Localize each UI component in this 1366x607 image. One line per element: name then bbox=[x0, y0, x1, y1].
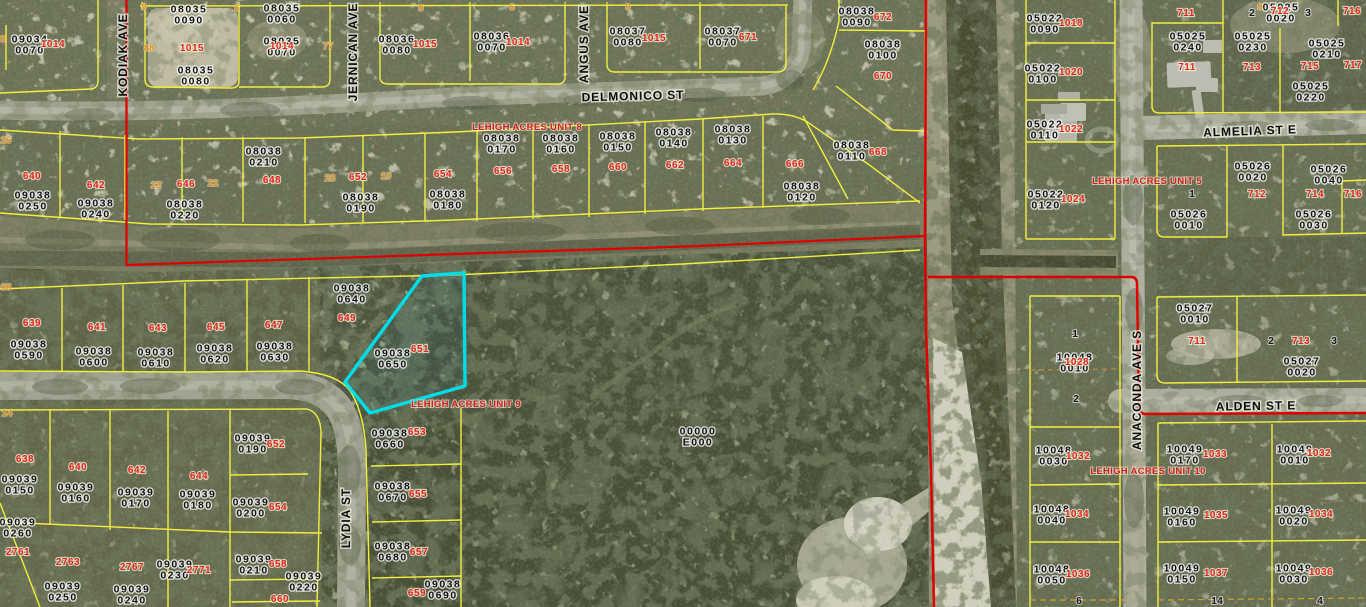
svg-text:2: 2 bbox=[1249, 7, 1255, 19]
svg-text:0040: 0040 bbox=[1037, 515, 1066, 527]
svg-text:0220: 0220 bbox=[289, 582, 318, 594]
svg-text:716: 716 bbox=[1344, 189, 1362, 200]
svg-text:1014: 1014 bbox=[41, 39, 65, 50]
svg-text:1018: 1018 bbox=[1059, 18, 1083, 29]
svg-text:0070: 0070 bbox=[477, 42, 506, 54]
svg-text:2761: 2761 bbox=[6, 547, 30, 558]
svg-text:643: 643 bbox=[149, 323, 167, 334]
svg-text:0050: 0050 bbox=[1037, 575, 1066, 587]
svg-text:1035: 1035 bbox=[1204, 510, 1228, 521]
svg-text:0090: 0090 bbox=[842, 17, 871, 29]
svg-text:655: 655 bbox=[409, 489, 427, 500]
svg-text:0030: 0030 bbox=[1039, 456, 1068, 468]
svg-text:662: 662 bbox=[666, 160, 684, 171]
svg-text:641: 641 bbox=[88, 322, 106, 333]
svg-text:0170: 0170 bbox=[1170, 455, 1199, 467]
svg-text:651: 651 bbox=[411, 344, 429, 355]
svg-text:1034: 1034 bbox=[1309, 509, 1333, 520]
svg-text:0160: 0160 bbox=[1167, 517, 1196, 529]
svg-text:ANGUS AVE: ANGUS AVE bbox=[577, 5, 591, 83]
svg-text:659: 659 bbox=[408, 588, 426, 599]
svg-text:0100: 0100 bbox=[868, 50, 897, 62]
svg-text:0010: 0010 bbox=[1174, 220, 1203, 232]
svg-text:717: 717 bbox=[1344, 60, 1362, 71]
svg-text:0590: 0590 bbox=[14, 350, 43, 362]
svg-text:640: 640 bbox=[23, 171, 41, 182]
svg-text:LEHIGH ACRES UNIT 10: LEHIGH ACRES UNIT 10 bbox=[1090, 466, 1205, 477]
svg-text:0220: 0220 bbox=[1296, 92, 1325, 104]
svg-text:0110: 0110 bbox=[1031, 130, 1060, 142]
svg-text:0170: 0170 bbox=[121, 498, 150, 510]
svg-text:0600: 0600 bbox=[79, 357, 108, 369]
svg-text:646: 646 bbox=[177, 179, 195, 190]
svg-text:1034: 1034 bbox=[1065, 509, 1089, 520]
svg-text:0090: 0090 bbox=[1030, 24, 1059, 36]
svg-text:0240: 0240 bbox=[1173, 42, 1202, 54]
svg-text:0150: 0150 bbox=[5, 485, 34, 497]
svg-text:0250: 0250 bbox=[18, 201, 47, 213]
svg-text:0150: 0150 bbox=[603, 142, 632, 154]
svg-text:0660: 0660 bbox=[375, 439, 404, 451]
svg-text:28: 28 bbox=[325, 173, 336, 184]
svg-text:1028: 1028 bbox=[1065, 357, 1089, 368]
svg-text:LEHIGH ACRES UNIT 8: LEHIGH ACRES UNIT 8 bbox=[472, 122, 582, 133]
svg-text:0190: 0190 bbox=[238, 444, 267, 456]
svg-text:9: 9 bbox=[141, 2, 146, 13]
svg-text:0040: 0040 bbox=[1314, 175, 1343, 187]
svg-text:KODIAK AVE: KODIAK AVE bbox=[116, 13, 130, 96]
svg-text:642: 642 bbox=[128, 465, 146, 476]
svg-text:0080: 0080 bbox=[382, 45, 411, 57]
svg-text:0690: 0690 bbox=[428, 590, 457, 602]
svg-text:LYDIA ST: LYDIA ST bbox=[339, 488, 353, 548]
svg-text:666: 666 bbox=[786, 159, 804, 170]
svg-text:654: 654 bbox=[434, 169, 452, 180]
svg-text:672: 672 bbox=[874, 12, 892, 23]
svg-text:714: 714 bbox=[1306, 189, 1324, 200]
svg-text:2: 2 bbox=[1268, 335, 1274, 347]
svg-text:22: 22 bbox=[208, 178, 219, 189]
svg-text:0180: 0180 bbox=[183, 500, 212, 512]
svg-text:4: 4 bbox=[1317, 595, 1323, 607]
svg-text:6: 6 bbox=[234, 3, 239, 14]
svg-text:77: 77 bbox=[323, 41, 334, 52]
svg-text:ALDEN ST E: ALDEN ST E bbox=[1216, 398, 1297, 413]
svg-text:LEHIGH ACRES UNIT 9: LEHIGH ACRES UNIT 9 bbox=[411, 399, 521, 410]
svg-text:0230: 0230 bbox=[1238, 42, 1267, 54]
svg-text:0130: 0130 bbox=[718, 135, 747, 147]
svg-text:668: 668 bbox=[869, 147, 887, 158]
svg-text:1: 1 bbox=[1189, 188, 1195, 200]
svg-text:712: 712 bbox=[1271, 6, 1289, 17]
svg-text:0210: 0210 bbox=[1312, 49, 1341, 61]
svg-text:0210: 0210 bbox=[249, 157, 278, 169]
svg-text:1: 1 bbox=[1072, 328, 1078, 340]
svg-text:88: 88 bbox=[144, 43, 155, 54]
svg-text:0230: 0230 bbox=[160, 570, 189, 582]
svg-text:671: 671 bbox=[739, 32, 757, 43]
svg-text:1033: 1033 bbox=[1203, 449, 1227, 460]
svg-text:19: 19 bbox=[381, 171, 392, 182]
svg-text:649: 649 bbox=[338, 313, 356, 324]
svg-text:0250: 0250 bbox=[48, 592, 77, 604]
svg-text:653: 653 bbox=[408, 427, 426, 438]
svg-text:0020: 0020 bbox=[1287, 367, 1316, 379]
svg-text:1022: 1022 bbox=[1059, 124, 1083, 135]
svg-text:0010: 0010 bbox=[1180, 314, 1209, 326]
svg-text:0140: 0140 bbox=[659, 138, 688, 150]
svg-text:660: 660 bbox=[609, 162, 627, 173]
svg-text:1032: 1032 bbox=[1066, 451, 1090, 462]
svg-text:0670: 0670 bbox=[378, 492, 407, 504]
svg-text:1024: 1024 bbox=[1061, 194, 1085, 205]
svg-text:0160: 0160 bbox=[61, 493, 90, 505]
svg-text:9: 9 bbox=[1257, 2, 1262, 13]
svg-text:648: 648 bbox=[263, 175, 281, 186]
svg-text:0210: 0210 bbox=[239, 565, 268, 577]
svg-text:9: 9 bbox=[418, 3, 423, 14]
svg-text:1014: 1014 bbox=[506, 37, 530, 48]
svg-text:713: 713 bbox=[1292, 336, 1310, 347]
svg-text:0640: 0640 bbox=[337, 294, 366, 306]
svg-text:0240: 0240 bbox=[117, 595, 146, 607]
svg-text:1015: 1015 bbox=[180, 43, 204, 54]
svg-text:0190: 0190 bbox=[346, 203, 375, 215]
svg-text:0200: 0200 bbox=[236, 508, 265, 520]
svg-text:0150: 0150 bbox=[1167, 574, 1196, 586]
svg-text:0680: 0680 bbox=[378, 552, 407, 564]
svg-text:23: 23 bbox=[151, 180, 162, 191]
svg-text:14: 14 bbox=[1211, 595, 1223, 607]
svg-text:658: 658 bbox=[269, 559, 287, 570]
svg-text:716: 716 bbox=[1343, 6, 1361, 17]
svg-text:1014: 1014 bbox=[270, 41, 294, 52]
svg-text:0170: 0170 bbox=[487, 144, 516, 156]
svg-text:1015: 1015 bbox=[642, 33, 666, 44]
svg-text:0100: 0100 bbox=[1028, 74, 1057, 86]
svg-text:1037: 1037 bbox=[1204, 568, 1228, 579]
svg-text:0620: 0620 bbox=[200, 354, 229, 366]
svg-text:6: 6 bbox=[509, 2, 514, 13]
svg-text:ANACONDA AVE S: ANACONDA AVE S bbox=[1130, 330, 1144, 450]
svg-text:656: 656 bbox=[494, 166, 512, 177]
svg-text:E000: E000 bbox=[683, 437, 714, 449]
svg-text:652: 652 bbox=[267, 439, 285, 450]
svg-text:1020: 1020 bbox=[1059, 67, 1083, 78]
svg-text:2771: 2771 bbox=[187, 565, 211, 576]
svg-text:1036: 1036 bbox=[1309, 567, 1333, 578]
svg-text:2: 2 bbox=[1073, 393, 1079, 405]
svg-text:711: 711 bbox=[1177, 8, 1195, 19]
svg-text:654: 654 bbox=[269, 502, 287, 513]
svg-text:711: 711 bbox=[1178, 62, 1196, 73]
svg-text:644: 644 bbox=[190, 471, 208, 482]
svg-text:0160: 0160 bbox=[546, 144, 575, 156]
svg-text:0220: 0220 bbox=[170, 210, 199, 222]
svg-text:658: 658 bbox=[552, 164, 570, 175]
svg-text:711: 711 bbox=[1188, 336, 1206, 347]
svg-text:642: 642 bbox=[87, 180, 105, 191]
svg-text:0060: 0060 bbox=[267, 14, 296, 26]
svg-text:664: 664 bbox=[724, 158, 742, 169]
svg-text:647: 647 bbox=[265, 320, 283, 331]
svg-text:0120: 0120 bbox=[1031, 200, 1060, 212]
svg-text:713: 713 bbox=[1243, 62, 1261, 73]
svg-text:0090: 0090 bbox=[174, 15, 203, 27]
svg-text:0260: 0260 bbox=[3, 528, 32, 540]
svg-text:2767: 2767 bbox=[120, 562, 144, 573]
svg-text:639: 639 bbox=[23, 318, 41, 329]
svg-text:0080: 0080 bbox=[181, 76, 210, 88]
svg-text:3: 3 bbox=[1305, 7, 1311, 19]
svg-text:8: 8 bbox=[0, 34, 5, 45]
svg-text:0120: 0120 bbox=[787, 192, 816, 204]
svg-text:LEHIGH ACRES UNIT 5: LEHIGH ACRES UNIT 5 bbox=[1092, 176, 1202, 187]
svg-text:652: 652 bbox=[349, 172, 367, 183]
svg-text:0030: 0030 bbox=[1299, 220, 1328, 232]
svg-text:DELMONICO ST: DELMONICO ST bbox=[581, 88, 684, 105]
svg-text:0070: 0070 bbox=[708, 37, 737, 49]
svg-text:0030: 0030 bbox=[1279, 574, 1308, 586]
svg-text:0020: 0020 bbox=[1238, 172, 1267, 184]
svg-text:JERNICAN AVE: JERNICAN AVE bbox=[346, 3, 360, 102]
svg-text:0630: 0630 bbox=[260, 352, 289, 364]
svg-text:660: 660 bbox=[271, 594, 289, 605]
svg-text:638: 638 bbox=[16, 454, 34, 465]
svg-text:1036: 1036 bbox=[1066, 569, 1090, 580]
svg-text:3: 3 bbox=[1331, 335, 1337, 347]
svg-text:26: 26 bbox=[1, 135, 12, 146]
svg-text:0650: 0650 bbox=[378, 359, 407, 371]
svg-text:0180: 0180 bbox=[433, 200, 462, 212]
svg-text:0110: 0110 bbox=[838, 151, 867, 163]
svg-text:670: 670 bbox=[874, 71, 892, 82]
svg-text:2763: 2763 bbox=[56, 557, 80, 568]
svg-text:0080: 0080 bbox=[613, 37, 642, 49]
svg-text:712: 712 bbox=[1248, 189, 1266, 200]
svg-text:68: 68 bbox=[1, 282, 12, 293]
svg-text:0020: 0020 bbox=[1279, 516, 1308, 528]
svg-text:1032: 1032 bbox=[1307, 448, 1331, 459]
svg-text:657: 657 bbox=[410, 547, 428, 558]
svg-text:645: 645 bbox=[207, 322, 225, 333]
svg-text:0610: 0610 bbox=[141, 358, 170, 370]
svg-text:0240: 0240 bbox=[81, 209, 110, 221]
svg-text:6: 6 bbox=[1076, 595, 1082, 607]
svg-text:715: 715 bbox=[1301, 61, 1319, 72]
svg-text:0010: 0010 bbox=[1280, 455, 1309, 467]
svg-text:1015: 1015 bbox=[413, 39, 437, 50]
svg-text:640: 640 bbox=[69, 462, 87, 473]
svg-text:14: 14 bbox=[2, 408, 13, 419]
svg-text:9: 9 bbox=[625, 2, 630, 13]
